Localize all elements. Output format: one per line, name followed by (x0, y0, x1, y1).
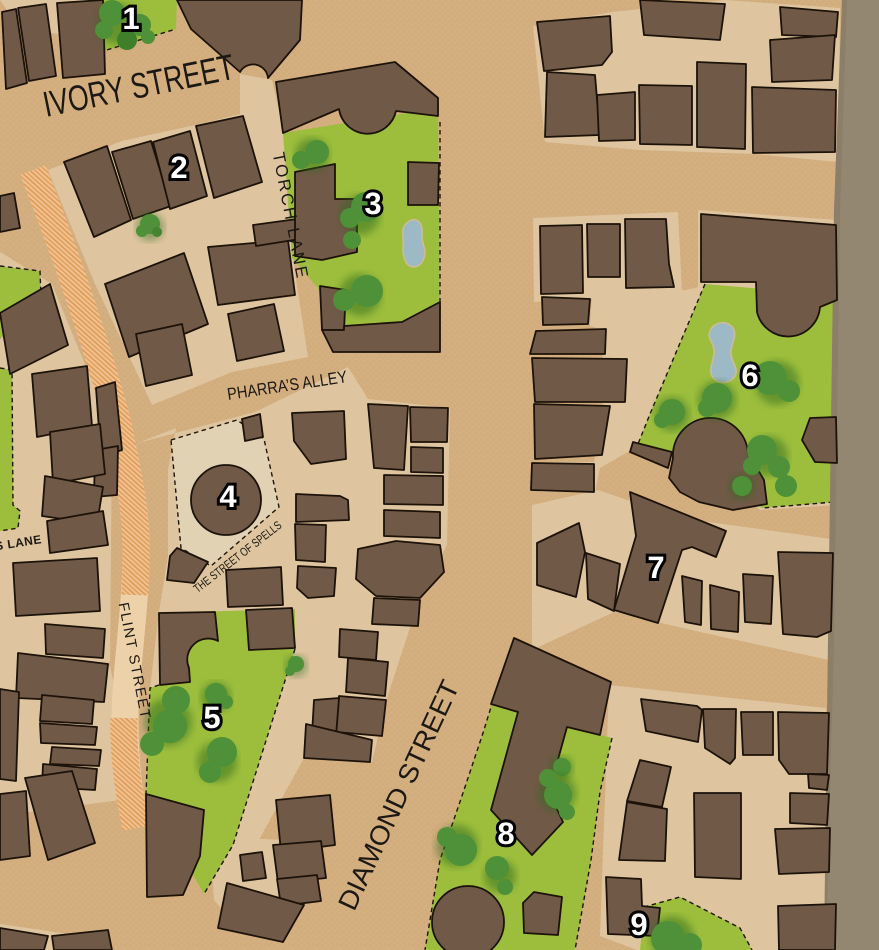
svg-text:2: 2 (170, 150, 187, 185)
svg-text:3: 3 (364, 186, 381, 221)
svg-text:6: 6 (741, 358, 758, 393)
svg-text:4: 4 (219, 479, 237, 514)
svg-text:9: 9 (630, 907, 647, 942)
svg-text:8: 8 (497, 816, 514, 851)
svg-text:1: 1 (122, 1, 139, 36)
svg-text:7: 7 (647, 550, 664, 585)
svg-text:5: 5 (203, 700, 220, 735)
